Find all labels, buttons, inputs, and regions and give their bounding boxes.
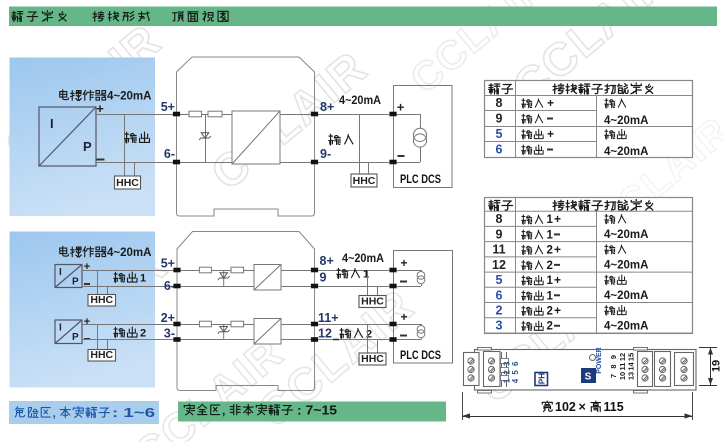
svg-text:2: 2 [547,260,553,272]
svg-text:4~20mA: 4~20mA [342,253,384,265]
svg-text:12: 12 [492,258,506,272]
svg-text:7: 7 [609,374,618,378]
svg-text:15: 15 [627,353,636,361]
svg-text:+: + [554,304,561,318]
svg-text:4~20mA: 4~20mA [604,290,648,302]
svg-text:,: , [222,404,225,418]
svg-text:9: 9 [496,227,503,241]
svg-text:3: 3 [496,319,503,333]
svg-text:6: 6 [496,143,503,157]
svg-text:6: 6 [496,288,503,302]
svg-text:2: 2 [547,321,553,333]
svg-text:P: P [72,332,79,343]
svg-text:19: 19 [710,360,722,372]
svg-text:P: P [83,139,92,154]
svg-text:+: + [554,273,561,287]
svg-text:5: 5 [496,273,503,287]
svg-text:6-: 6- [164,147,175,161]
svg-text:8: 8 [609,364,618,368]
svg-text:5: 5 [511,370,520,375]
svg-text:: 7~15: : 7~15 [297,404,337,418]
svg-text:I: I [50,116,54,131]
svg-text:4~20mA: 4~20mA [604,229,648,241]
svg-text:4~20mA: 4~20mA [107,247,151,259]
svg-text:4~20mA: 4~20mA [604,260,648,272]
svg-text:P: P [72,277,79,288]
svg-text:4~20mA: 4~20mA [339,95,381,107]
svg-text:I: I [59,323,62,334]
svg-text:8+: 8+ [320,254,334,268]
svg-text:115: 115 [604,400,624,414]
svg-text:102: 102 [555,400,576,414]
svg-text:1: 1 [547,290,554,302]
svg-text:11: 11 [492,243,505,257]
svg-text:1: 1 [363,269,369,281]
svg-text:11+: 11+ [318,311,339,325]
svg-text:8: 8 [496,96,503,110]
svg-text:HHC: HHC [116,177,139,189]
svg-text:13: 13 [627,372,636,380]
svg-text:+: + [547,96,554,110]
svg-text:,: , [53,406,56,420]
svg-text:PH: PH [538,373,547,384]
svg-text:I: I [59,267,62,278]
svg-text:×: × [579,400,586,414]
svg-text:HHC: HHC [361,296,384,308]
svg-text:PLC DCS: PLC DCS [400,350,441,362]
svg-text:9: 9 [496,112,503,126]
svg-text:6: 6 [511,361,520,366]
svg-text:5+: 5+ [161,100,175,114]
svg-text:1: 1 [547,214,554,226]
svg-text:+: + [547,127,554,141]
svg-text:4~20mA: 4~20mA [604,321,648,333]
svg-text:+: + [84,316,90,328]
svg-text:8+: 8+ [320,100,334,114]
svg-text:2: 2 [366,329,372,341]
svg-text:S: S [585,372,592,383]
svg-text:HHC: HHC [90,349,113,361]
svg-text:9: 9 [609,355,618,359]
svg-text:4: 4 [511,378,520,383]
svg-text:+: + [554,243,561,257]
svg-text:5: 5 [496,127,503,141]
svg-text:+: + [397,100,405,115]
svg-text:9-: 9- [320,147,331,161]
svg-text:1: 1 [140,273,146,285]
svg-text:+: + [400,310,407,324]
svg-text:+: + [400,256,407,270]
svg-text:+: + [84,261,90,273]
svg-text:2: 2 [547,245,553,257]
svg-text:HHC: HHC [353,175,376,187]
svg-text:3-: 3- [164,327,175,341]
svg-text:: 1~6: : 1~6 [112,406,155,420]
svg-text:HHC: HHC [90,294,113,306]
svg-text:HHC: HHC [361,353,384,365]
svg-text:4~20mA: 4~20mA [107,91,151,103]
svg-text:1: 1 [547,275,554,287]
svg-text:1: 1 [547,229,554,241]
svg-text:+: + [96,101,104,116]
svg-text:2+: 2+ [161,311,175,325]
svg-text:5+: 5+ [161,257,175,271]
svg-text:POWER: POWER [596,347,603,373]
svg-text:8: 8 [496,212,503,226]
svg-text:2: 2 [496,304,503,318]
svg-text:9: 9 [320,271,327,285]
svg-text:2: 2 [547,306,553,318]
svg-text:4~20mA: 4~20mA [604,115,648,127]
svg-text:4~20mA: 4~20mA [604,146,648,158]
svg-text:6-: 6- [164,279,175,293]
svg-text:+: + [554,212,561,226]
svg-text:2: 2 [140,328,146,340]
svg-text:PLC DCS: PLC DCS [400,174,441,186]
svg-text:14: 14 [627,362,636,371]
svg-text:12: 12 [318,327,332,341]
